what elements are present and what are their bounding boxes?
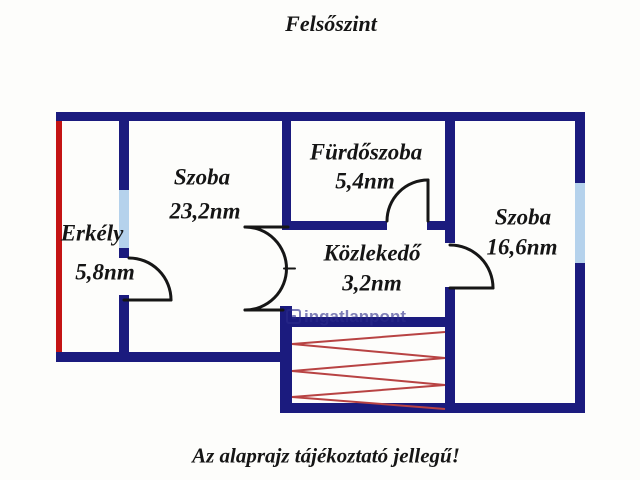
watermark: ingatlanpont — [286, 308, 406, 325]
wall-szoba-furdoszoba — [282, 121, 291, 230]
watermark-brand-text: ingatlanpont — [304, 308, 406, 325]
double-door-szoba-kozlekedo — [245, 227, 295, 310]
wall-furdoszoba-bottom-left — [282, 221, 387, 230]
window-right-szoba — [575, 183, 585, 263]
outer-wall-bottom-left — [56, 352, 292, 362]
outer-wall-top — [56, 112, 585, 121]
room-label-szoba2-area: 16,6nm — [487, 236, 558, 259]
room-label-erkely-area: 5,8nm — [75, 261, 134, 284]
floor-plan-title: Felsőszint — [285, 13, 377, 35]
room-label-kozlekedo-name: Közlekedő — [323, 242, 420, 265]
room-label-furdoszoba-area: 5,4nm — [335, 170, 394, 193]
door-erkely-arc — [129, 258, 171, 300]
disclaimer-caption: Az alaprajz tájékoztató jellegű! — [192, 446, 460, 467]
wall-erkely-szoba-upper — [119, 121, 129, 190]
wall-erkely-szoba-lower — [119, 295, 129, 352]
room-label-szoba2-name: Szoba — [495, 206, 551, 229]
room-label-szoba1-name: Szoba — [174, 166, 230, 189]
room-label-furdoszoba-name: Fürdőszoba — [310, 141, 422, 164]
double-door-arcs — [245, 227, 287, 310]
wall-kozlekedo-right-lower — [445, 287, 455, 413]
stairs — [292, 332, 445, 409]
wall-erkely-szoba-stub — [119, 248, 129, 258]
room-label-kozlekedo-area: 3,2nm — [342, 272, 401, 295]
watermark-logo-icon — [286, 309, 301, 324]
wall-kozlekedo-right-upper — [445, 112, 455, 243]
room-label-szoba1-area: 23,2nm — [170, 200, 241, 223]
room-label-erkely-name: Erkély — [61, 222, 124, 245]
